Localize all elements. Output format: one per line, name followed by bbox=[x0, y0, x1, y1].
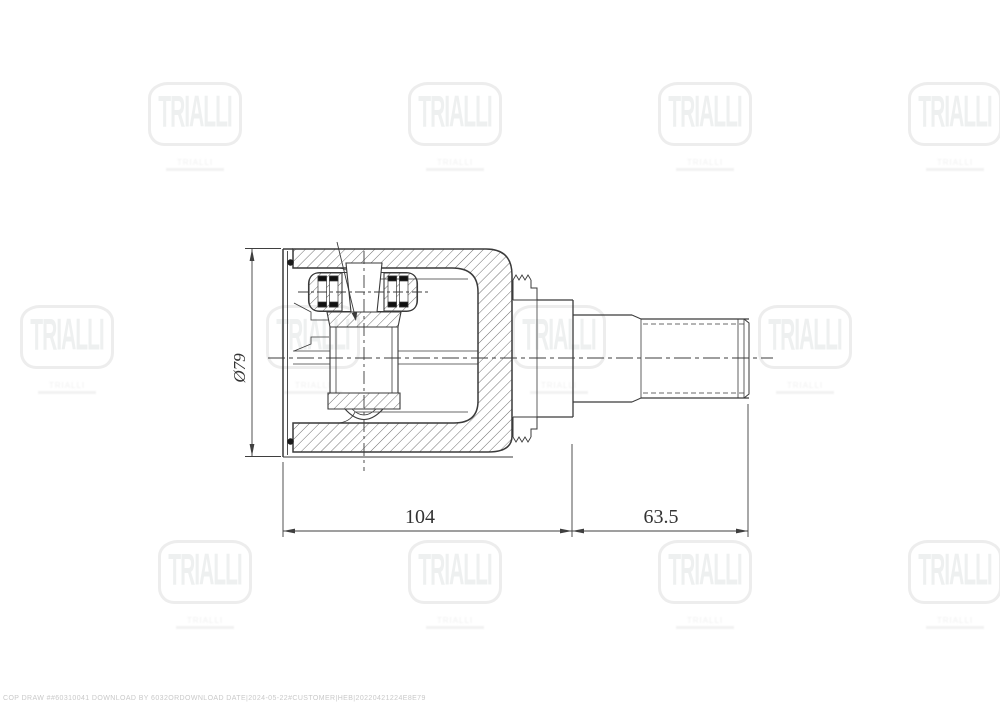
dimension-diameter-label: Ø79 bbox=[230, 353, 249, 384]
dimension-stem-length-label: 63.5 bbox=[644, 506, 679, 528]
technical-drawing: Ø79 104 63.5 bbox=[0, 0, 1000, 707]
tripod-roller-assembly bbox=[309, 263, 418, 420]
footer-code-text: COP DRAW ##60310041 DOWNLOAD BY 6032ORDO… bbox=[3, 695, 426, 702]
page: TRIALLITRIALLI TRIALLITRIALLI TRIALLITRI… bbox=[0, 0, 1000, 707]
seal-ring-bottom bbox=[287, 438, 293, 444]
stem-shaft bbox=[513, 275, 749, 442]
seal-ring-top bbox=[287, 259, 293, 265]
dimension-housing-length-label: 104 bbox=[405, 506, 435, 528]
